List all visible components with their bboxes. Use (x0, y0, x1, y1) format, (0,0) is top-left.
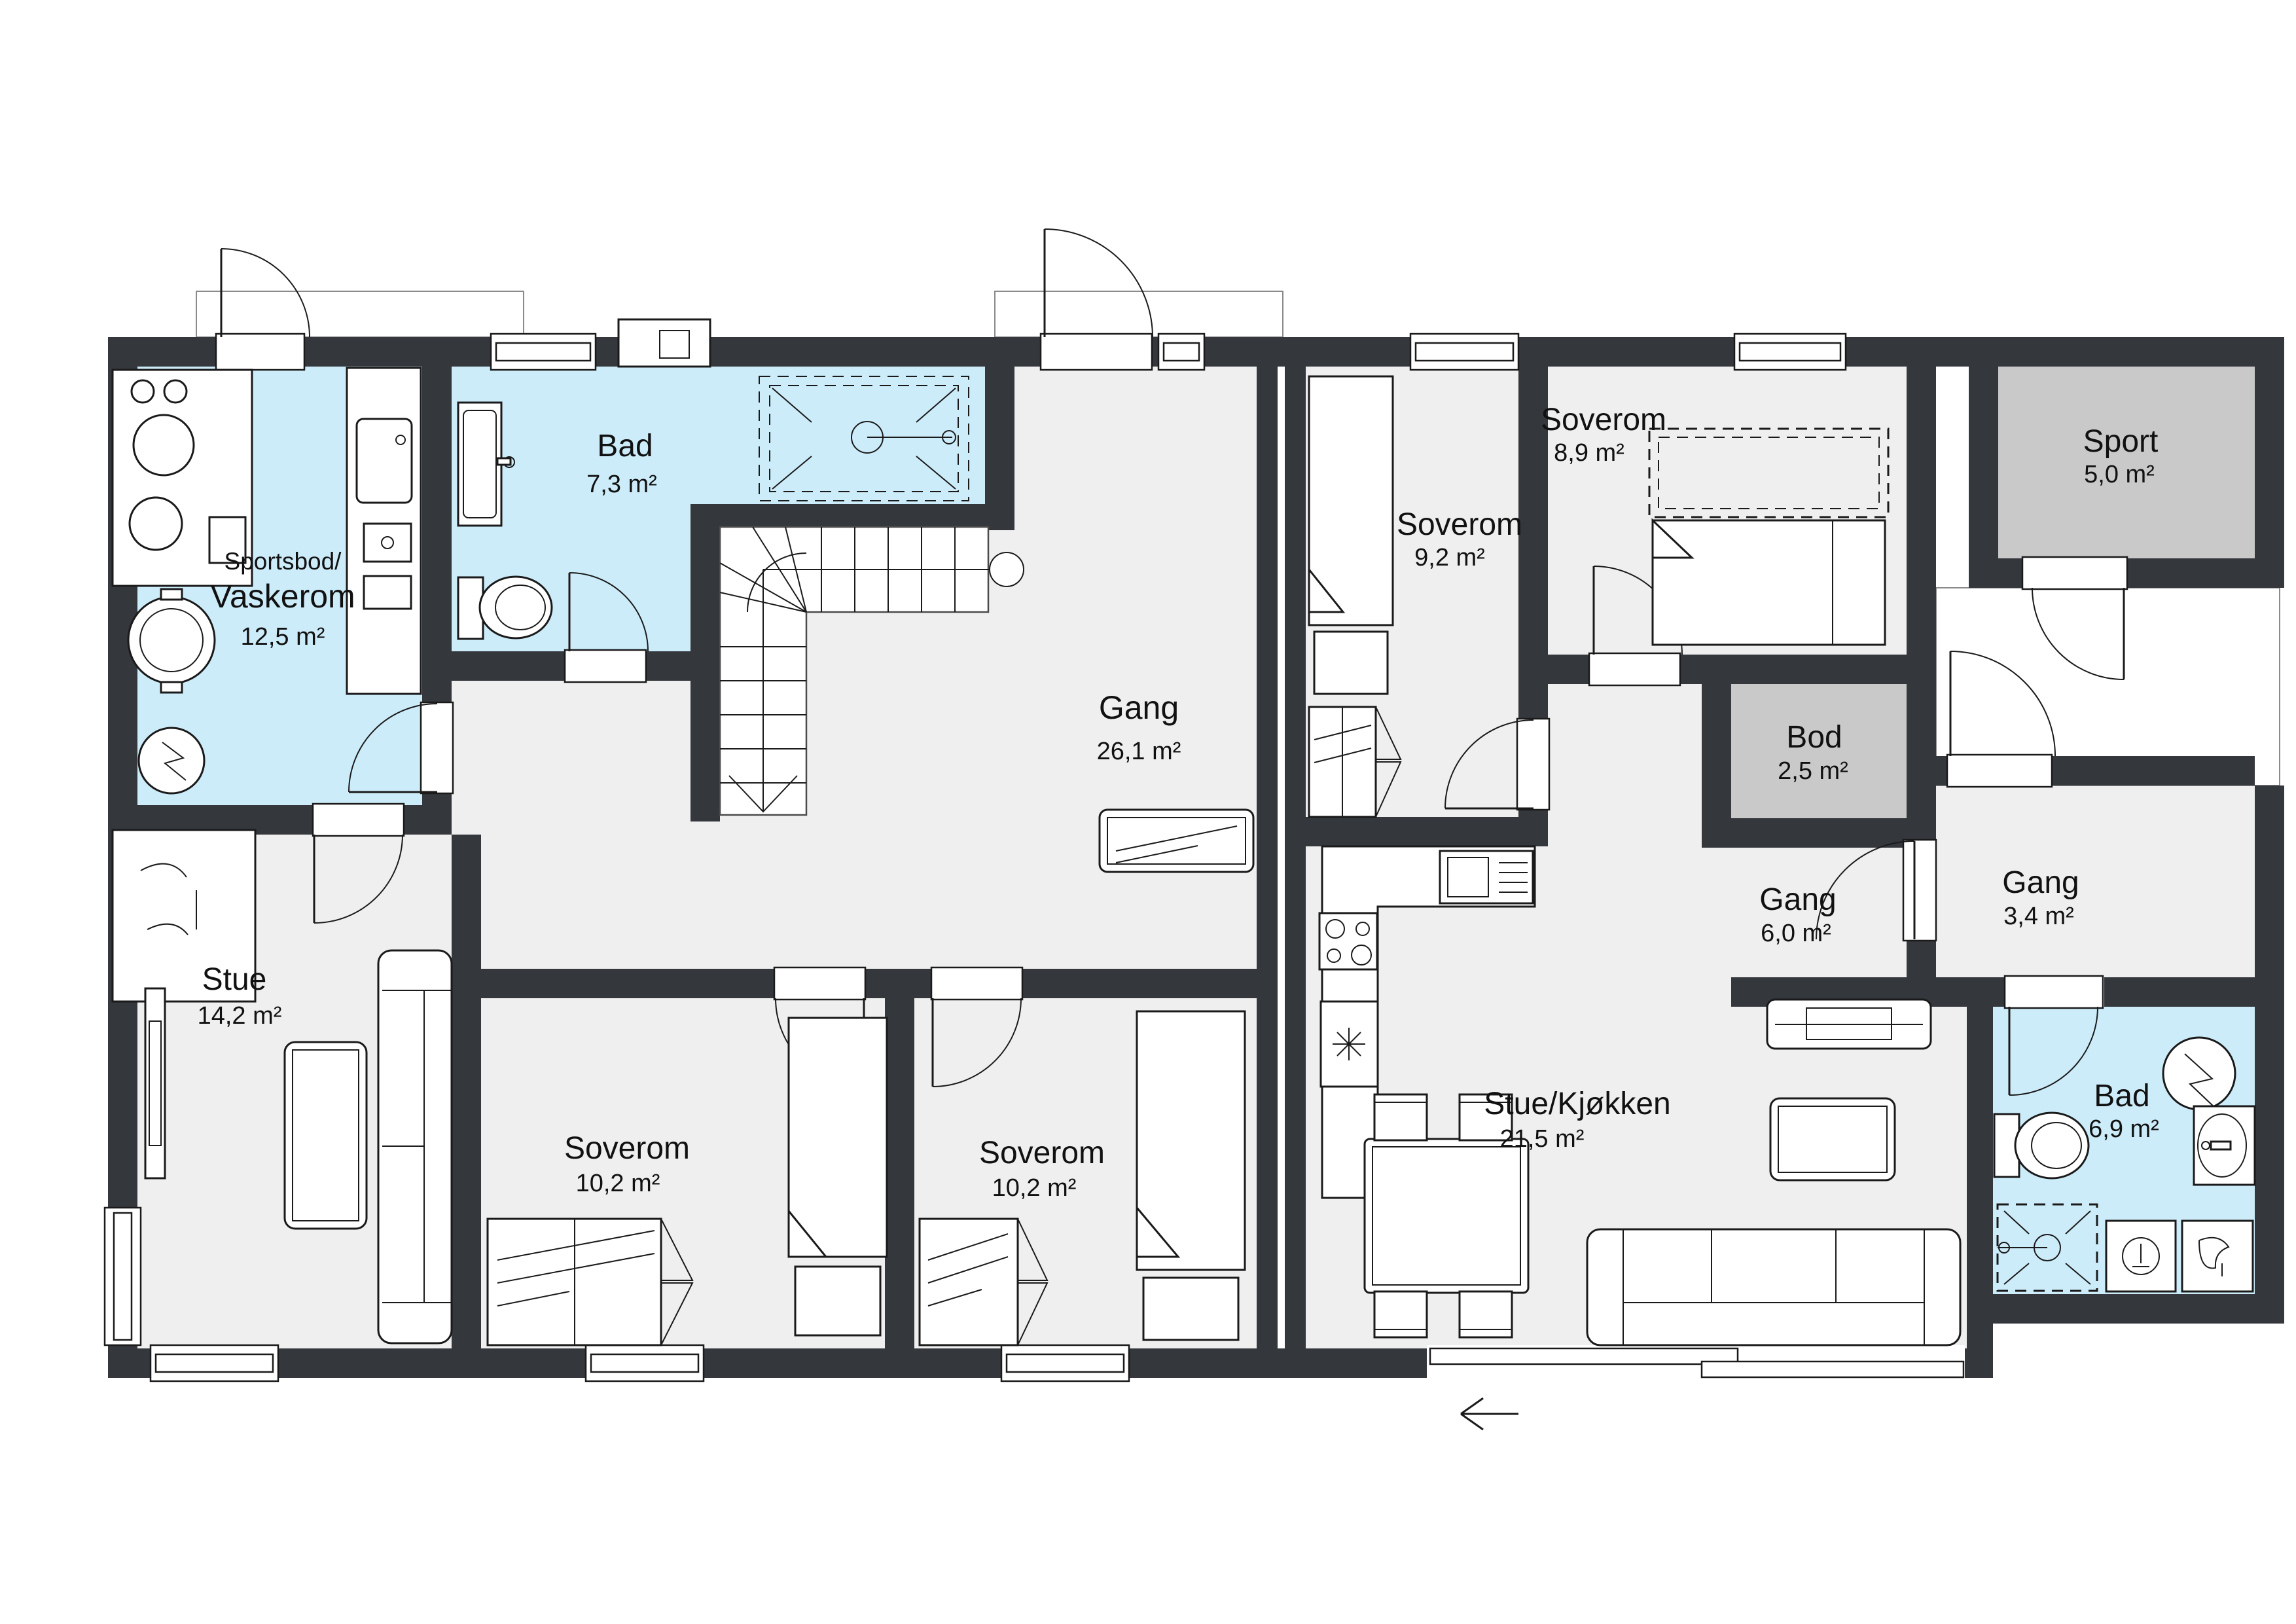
door-gang-3-4-entry (1947, 651, 2055, 787)
bed-soverom-a (789, 1018, 887, 1335)
window-soverom-8-9 (1734, 334, 1846, 370)
label-gang-26-1: Gang (1099, 689, 1179, 726)
label-vaskerom-area: 12,5 m² (241, 623, 325, 651)
label-soverom-9-2: Soverom (1397, 507, 1522, 542)
label-gang-3-4: Gang (2002, 865, 2079, 900)
label-stue-kjokken: Stue/Kjøkken (1484, 1087, 1670, 1121)
label-stue: Stue (202, 962, 267, 997)
label-gang-6-0: Gang (1759, 882, 1836, 917)
label-bad-6-9-area: 6,9 m² (2089, 1115, 2159, 1143)
label-soverom-8-9-area: 8,9 m² (1554, 439, 1624, 467)
label-stue-area: 14,2 m² (198, 1002, 282, 1030)
fridge-icon (1321, 1001, 1378, 1087)
floor-plan: Sportsbod/ Vaskerom 12,5 m² Bad 7,3 m² G… (0, 0, 2296, 1624)
label-soverom-8-9: Soverom (1541, 403, 1666, 437)
door-sport (2022, 557, 2127, 679)
wardrobe-soverom-a (488, 1219, 692, 1345)
bed-soverom-8-9 (1653, 520, 1885, 645)
label-soverom-a-area: 10,2 m² (576, 1170, 660, 1197)
coffee-table-stue-kjokken (1770, 1098, 1895, 1180)
water-heater-icon (139, 728, 204, 793)
label-sport: Sport (2083, 424, 2159, 459)
tv (145, 988, 165, 1178)
label-bod: Bod (1786, 720, 1842, 755)
bed-soverom-9-2 (1309, 376, 1393, 694)
dryer-bad-6-9 (2182, 1221, 2253, 1291)
chimney (619, 319, 710, 367)
label-soverom-a: Soverom (564, 1131, 690, 1166)
sink-bad-6-9 (2194, 1106, 2255, 1185)
sofa-stue-kjokken (1587, 1229, 1960, 1345)
label-sport-area: 5,0 m² (2084, 461, 2155, 488)
label-bad-7-3-area: 7,3 m² (586, 471, 657, 498)
label-stue-kjokken-area: 21,5 m² (1500, 1125, 1585, 1153)
sliding-door (1427, 1345, 1965, 1381)
room-gang-3-4 (1936, 785, 2255, 977)
toilet-bad-6-9 (1994, 1113, 2089, 1178)
label-soverom-b: Soverom (979, 1136, 1105, 1170)
label-gang-6-0-area: 6,0 m² (1761, 920, 1831, 947)
gang-sideboard (1100, 810, 1253, 872)
door-vaskerom-entry (216, 249, 310, 370)
toilet-bad-7-3 (458, 577, 552, 639)
window-stue-bottom (151, 1345, 278, 1381)
laundry-counter (347, 368, 421, 694)
sofa-stue (378, 950, 452, 1343)
window-soverom-9-2 (1410, 334, 1518, 370)
window-bad-7-3 (491, 334, 596, 370)
label-gang-3-4-area: 3,4 m² (2003, 903, 2074, 930)
coffee-table-stue (285, 1042, 367, 1229)
label-gang-26-1-area: 26,1 m² (1097, 738, 1181, 765)
label-bad-6-9: Bad (2094, 1079, 2149, 1113)
dining-table (1365, 1139, 1528, 1293)
window-stue-left (105, 1208, 141, 1345)
window-soverom-a-bottom (586, 1345, 704, 1381)
washer-bad-6-9 (2106, 1221, 2176, 1291)
window-soverom-b-bottom (1001, 1345, 1129, 1381)
bed-soverom-b (1137, 1011, 1245, 1340)
cooktop (1319, 913, 1377, 969)
label-vaskerom: Vaskerom (210, 578, 355, 615)
tv-bench (1767, 1000, 1931, 1049)
floor-plan-page: Sportsbod/ Vaskerom 12,5 m² Bad 7,3 m² G… (0, 0, 2296, 1624)
door-main-entry (1041, 229, 1153, 370)
entry-arrow-icon (1461, 1398, 1518, 1430)
kitchen-sink (1440, 851, 1533, 903)
window-top-sidelight (1158, 334, 1204, 370)
label-soverom-9-2-area: 9,2 m² (1414, 544, 1485, 571)
boiler-icon (2163, 1038, 2235, 1110)
label-soverom-b-area: 10,2 m² (992, 1174, 1077, 1202)
label-bad-7-3: Bad (597, 429, 653, 463)
label-bod-area: 2,5 m² (1778, 757, 1848, 785)
label-sportsbod: Sportsbod/ (224, 548, 342, 575)
